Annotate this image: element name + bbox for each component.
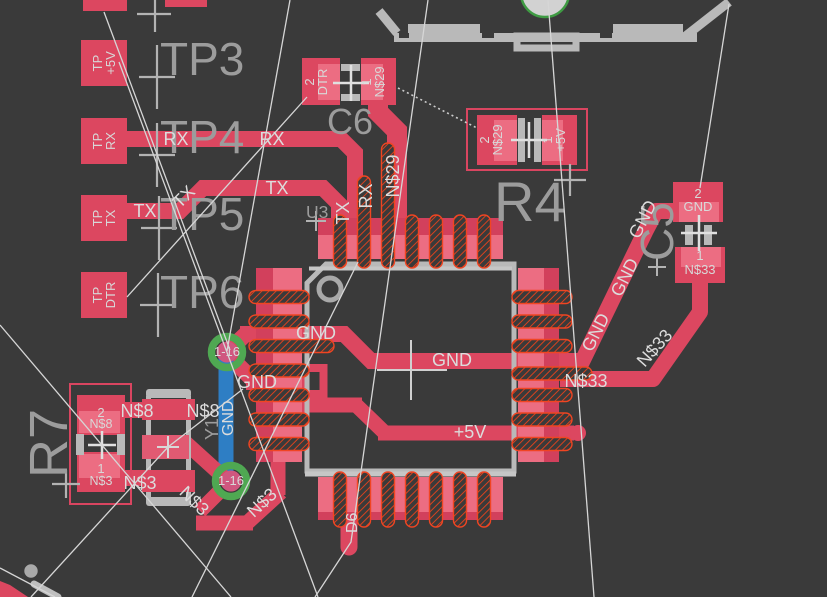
svg-text:GND: GND <box>296 323 336 343</box>
svg-text:N$8: N$8 <box>120 401 153 421</box>
svg-text:TX: TX <box>103 209 118 226</box>
svg-text:GND: GND <box>432 350 472 370</box>
svg-text:TX: TX <box>333 201 353 224</box>
svg-text:RX: RX <box>356 183 376 208</box>
svg-text:TX: TX <box>133 201 156 221</box>
svg-text:N$33: N$33 <box>564 371 607 391</box>
svg-text:GND: GND <box>220 400 237 436</box>
svg-text:TP3: TP3 <box>160 33 244 85</box>
svg-text:GND: GND <box>684 199 713 214</box>
svg-text:R4: R4 <box>494 170 566 233</box>
svg-text:1-16: 1-16 <box>218 473 244 488</box>
svg-text:N$3: N$3 <box>90 474 113 488</box>
svg-text:N$29: N$29 <box>490 124 505 155</box>
svg-text:+5V: +5V <box>454 422 487 442</box>
svg-text:+5V: +5V <box>103 51 118 75</box>
svg-text:1: 1 <box>696 248 703 263</box>
svg-text:N$29: N$29 <box>372 66 387 97</box>
svg-text:TX: TX <box>265 178 288 198</box>
svg-text:R7: R7 <box>19 409 79 478</box>
svg-text:N$29: N$29 <box>383 154 403 197</box>
svg-text:N$33: N$33 <box>684 262 715 277</box>
svg-text:DTR: DTR <box>315 69 330 96</box>
svg-text:+5V: +5V <box>553 128 568 152</box>
svg-text:DTR: DTR <box>103 282 118 309</box>
svg-text:RX: RX <box>163 129 188 149</box>
svg-text:N$8: N$8 <box>90 417 113 431</box>
svg-text:U3: U3 <box>306 202 328 222</box>
svg-text:C6: C6 <box>327 101 373 142</box>
svg-text:Y1: Y1 <box>202 418 222 440</box>
svg-text:RX: RX <box>103 132 118 150</box>
